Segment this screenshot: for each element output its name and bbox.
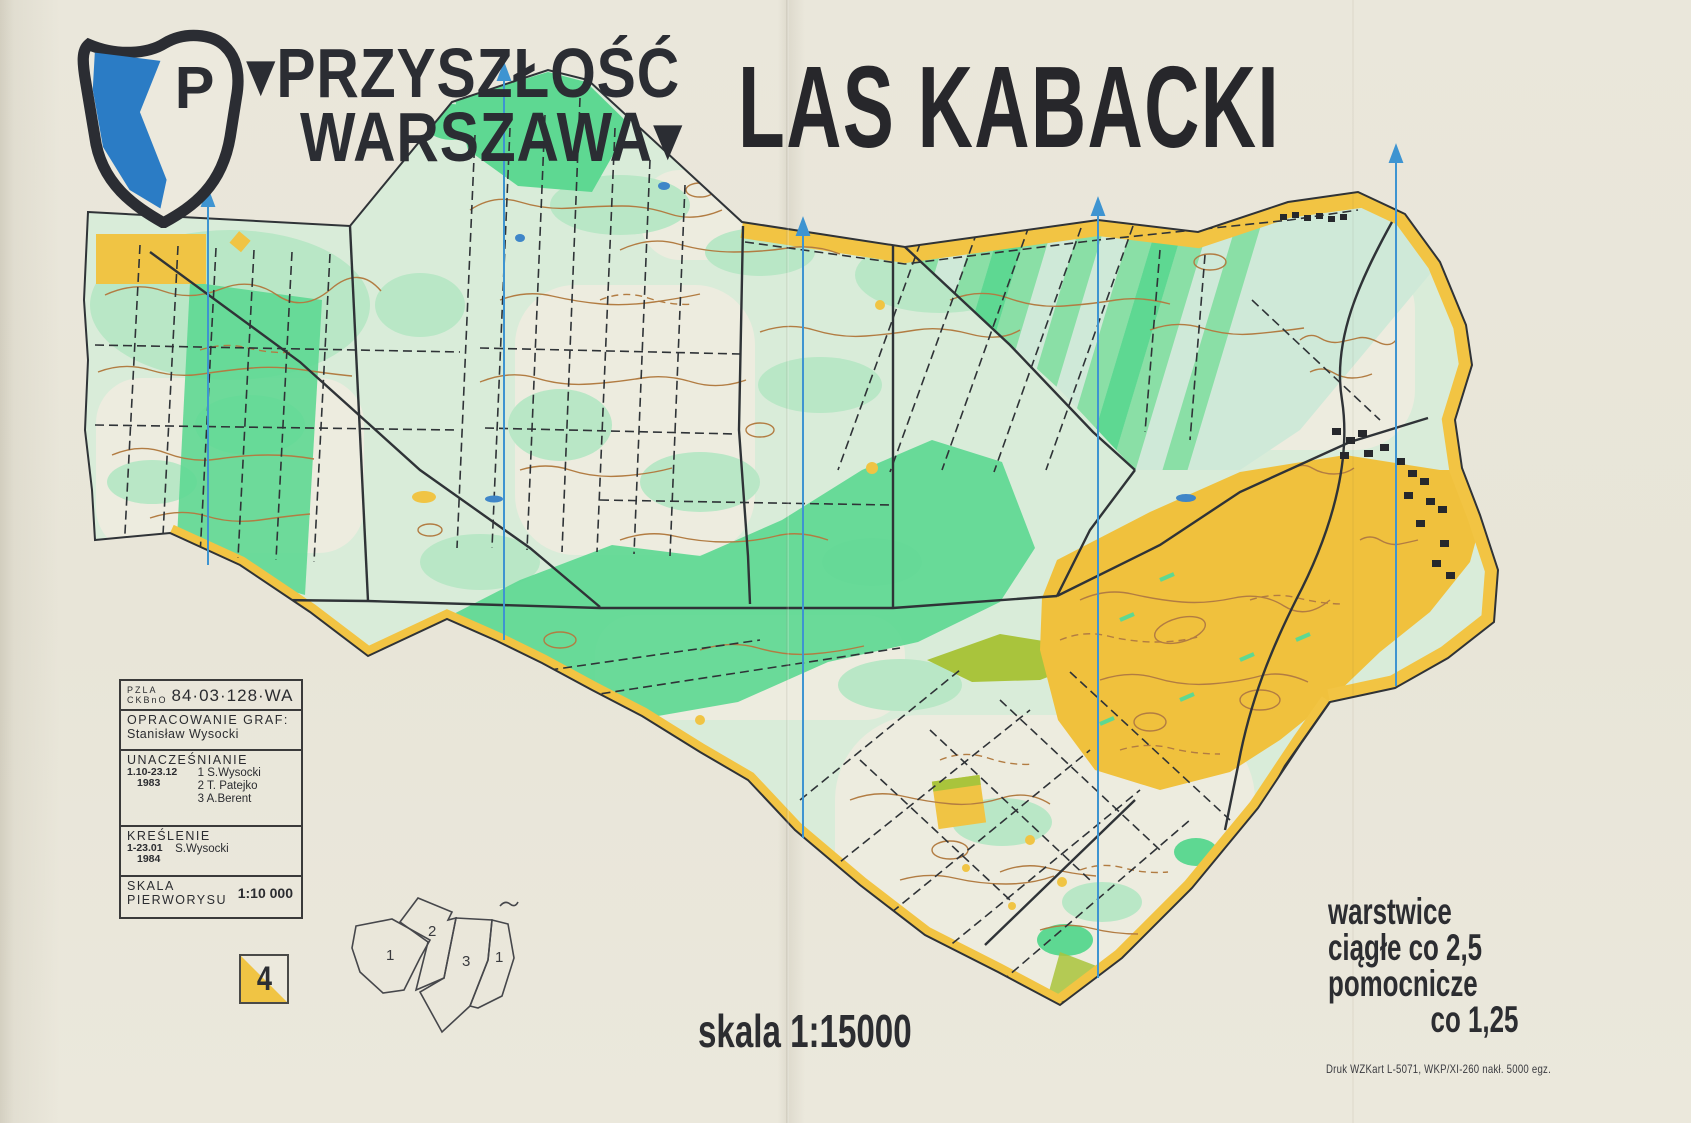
map-title: LAS KABACKI: [738, 40, 1280, 174]
credits-row-scale: SKALA PIERWORYSU 1:10 000: [121, 877, 301, 917]
map-sheet: P ▾PRZYSZŁOŚĆ WARSZAWA▾ LAS KABACKI PZLA…: [0, 0, 1691, 1123]
sheet-number-badge: 4: [239, 954, 289, 1004]
graphics-label: OPRACOWANIE GRAF:: [127, 713, 295, 727]
contour-note-line4: co 1,25: [1328, 1002, 1518, 1038]
index-label-3: 3: [462, 953, 470, 970]
base-scale-value: 1:10 000: [238, 885, 293, 901]
contour-note-line2: ciągłe co 2,5: [1328, 930, 1518, 966]
paper-fold-crease: [786, 0, 789, 1123]
update-people: 1 S.Wysocki 2 T. Patejko 3 A.Berent: [198, 767, 261, 806]
index-label-1: 1: [386, 947, 394, 964]
contour-note-line1: warstwice: [1328, 894, 1518, 930]
club-logo-shield: P: [70, 28, 255, 228]
index-area-2: [400, 898, 456, 990]
index-area-4: [470, 920, 514, 1008]
index-label-2: 2: [428, 923, 436, 940]
map-code: 84·03·128·WA: [172, 686, 294, 706]
update-label: UNACZEŚNIANIE: [127, 753, 295, 767]
paper-fold-crease-2: [1352, 0, 1354, 1123]
index-label-4: 1: [495, 949, 503, 966]
credits-row-org: PZLA CKBnO 84·03·128·WA: [121, 681, 301, 711]
index-squiggle: [500, 902, 518, 906]
shield-letter: P: [175, 54, 215, 121]
print-imprint: Druk WZKart L-5071, WKP/XI-260 nakł. 500…: [1326, 1062, 1551, 1076]
index-map: 1 2 3 1: [330, 880, 580, 1080]
credits-row-update: UNACZEŚNIANIE 1.10-23.12 1983 1 S.Wysock…: [121, 751, 301, 827]
org-name: PZLA CKBnO: [127, 685, 168, 705]
credits-row-graphics: OPRACOWANIE GRAF: Stanisław Wysocki: [121, 711, 301, 751]
contour-note-line3: pomocnicze: [1328, 966, 1518, 1002]
update-dates: 1.10-23.12 1983: [127, 767, 177, 789]
drawing-dates: 1-23.01 1984: [127, 843, 163, 865]
graphics-name: Stanisław Wysocki: [127, 727, 295, 741]
contour-interval-note: warstwice ciągłe co 2,5 pomocnicze co 1,…: [1328, 894, 1518, 1038]
drawing-name: S.Wysocki: [175, 843, 229, 856]
club-name-line2: WARSZAWA▾: [300, 96, 683, 178]
print-scale: skala 1:15000: [698, 1004, 912, 1058]
credits-box: PZLA CKBnO 84·03·128·WA OPRACOWANIE GRAF…: [119, 679, 303, 919]
drawing-label: KREŚLENIE: [127, 829, 295, 843]
sheet-number: 4: [256, 960, 271, 999]
credits-row-drawing: KREŚLENIE 1-23.01 1984 S.Wysocki: [121, 827, 301, 877]
